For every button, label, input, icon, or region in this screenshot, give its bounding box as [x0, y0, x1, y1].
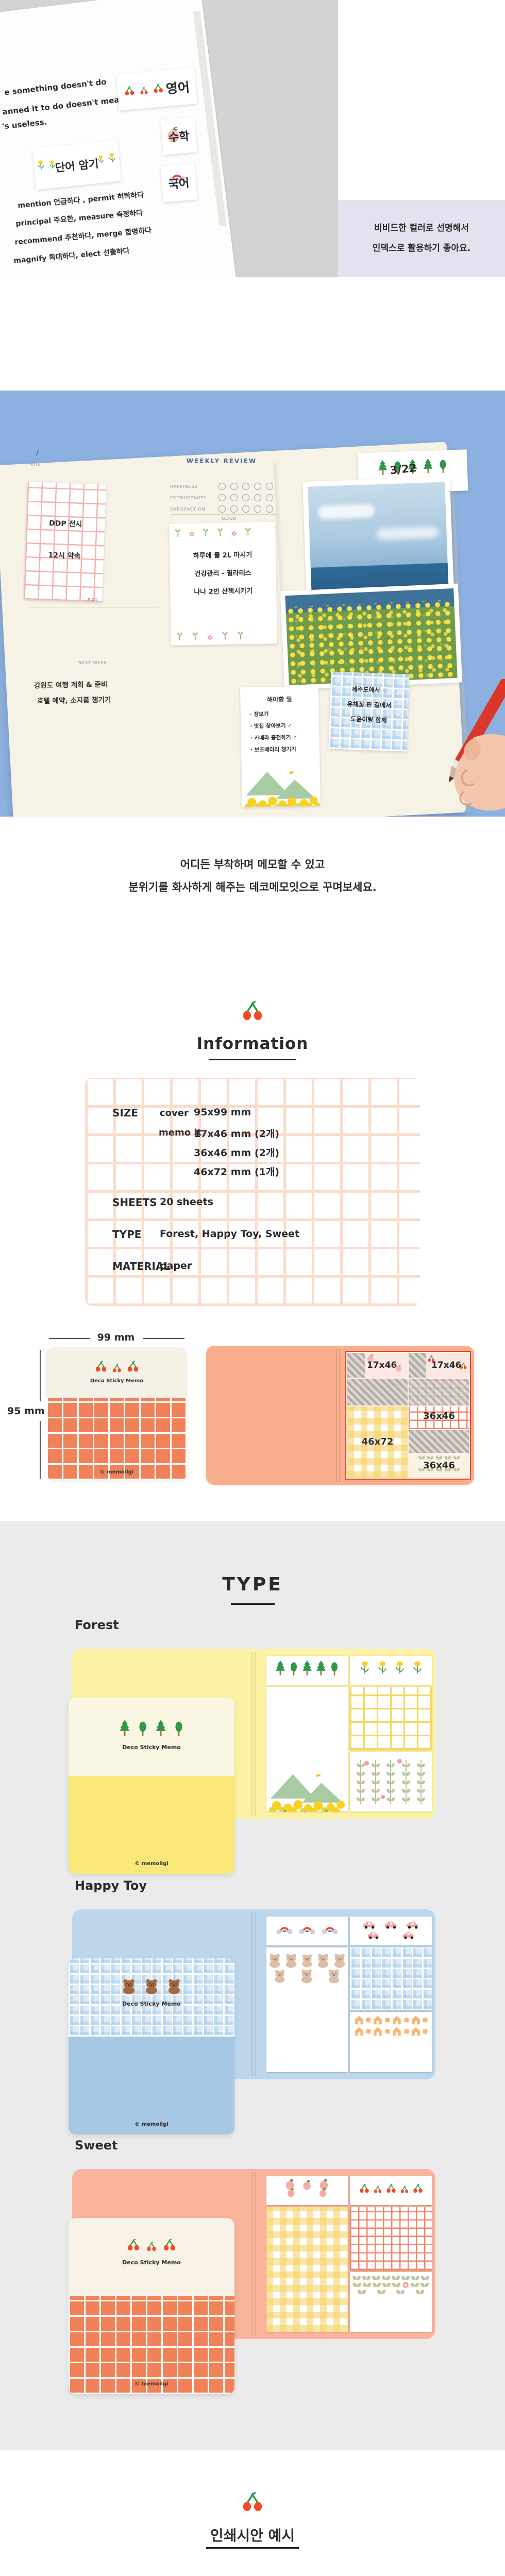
cherry-icon — [241, 2492, 264, 2515]
memo-line: 12시 약속 — [25, 549, 104, 562]
brand-label: © memoilgi — [46, 1469, 187, 1475]
information-title: Information — [0, 1035, 505, 1053]
tracker-happiness: HAPPINESS — [170, 484, 198, 489]
pine-tree-icon — [301, 1660, 313, 1676]
sprout-icon — [222, 631, 229, 640]
size-pad-front: Deco Sticky Memo © memoilgi — [46, 1347, 187, 1480]
bear-icon — [121, 1978, 137, 1994]
memo-sheet-gingham — [266, 2207, 348, 2332]
memo-17x46-peach: 17x46 — [347, 1353, 408, 1378]
leaf-icon — [435, 1455, 443, 1460]
todo-title: 해야할 일 — [240, 694, 318, 705]
car-icon — [362, 1920, 377, 1929]
flowers-texture — [285, 600, 457, 684]
memo-line: 나나 2번 산책시키기 — [170, 585, 276, 597]
house-icon — [372, 2026, 383, 2037]
adhesive-block — [409, 1430, 469, 1453]
width-dim-line — [143, 1338, 184, 1339]
memo-sheet-red-grid — [350, 2207, 432, 2270]
date-slash: / — [36, 447, 39, 457]
sprout-memo: 하루에 물 2L 마시기 건강관리 - 필라테스 나나 2번 산책시키기 — [169, 522, 277, 646]
house-icon — [410, 2014, 422, 2026]
house-icon — [391, 2014, 402, 2026]
sprout-icon — [174, 528, 181, 537]
cherry-icon — [126, 2239, 141, 2253]
memo-sheet-tulips — [350, 1656, 432, 1685]
flower-icon — [189, 531, 195, 537]
sweet-closed-cover: Deco Sticky Memo © memoilgi — [69, 2218, 234, 2394]
block-icon — [403, 2028, 410, 2035]
bear-icon — [316, 1953, 330, 1968]
adhesive-block — [347, 1379, 408, 1405]
leaf-icon — [372, 2275, 381, 2281]
memo-label: 단어 암기 — [33, 153, 120, 177]
leaf-icon — [418, 1455, 425, 1460]
cherry-icon — [241, 1001, 264, 1024]
block-icon — [384, 2028, 391, 2035]
pine-tree-icon — [377, 460, 389, 476]
bear-icon — [144, 1978, 159, 1994]
tulip-icon — [395, 1660, 405, 1675]
leaf-icon — [362, 2281, 372, 2289]
type-underline — [231, 1603, 275, 1605]
leaf-icon — [362, 2275, 371, 2281]
sprout-icon — [216, 527, 224, 537]
rainbow-icon — [321, 1924, 339, 1935]
leaf-icon — [444, 1455, 451, 1460]
flower-icon — [231, 531, 237, 537]
info-value: 36x46 mm (2개) — [194, 1145, 279, 1159]
leaf-icon — [352, 2281, 362, 2289]
bear-icon — [284, 1953, 298, 1968]
memo-sheet-mountain — [266, 1687, 348, 1811]
memo-line: DDP 전시 — [26, 517, 105, 530]
tracker-circles-row — [218, 494, 278, 503]
info-sub: cover — [160, 1108, 189, 1118]
leaf-icon — [420, 2281, 429, 2289]
brand-label: © memoilgi — [69, 1861, 234, 1867]
vine-icon — [371, 1756, 380, 1807]
cover-title: Deco Sticky Memo — [69, 2001, 234, 2007]
caption-line: 인덱스로 활용하기 좋아요. — [338, 241, 505, 253]
vine-icon — [386, 1756, 395, 1807]
happy-memo-panel — [266, 1917, 432, 2072]
info-value: paper — [160, 1260, 192, 1272]
happy-book-spine — [251, 1912, 256, 2076]
intro-caption-line: 어디든 부착하며 메모할 수 있고 — [0, 856, 505, 872]
car-icon — [401, 1930, 416, 1940]
leaf-icon — [381, 2275, 391, 2281]
memo-sheet-bears — [266, 1947, 348, 2072]
brand-label: © memoilgi — [69, 2122, 234, 2127]
memo-36x46-leaf: 36x46 — [409, 1454, 469, 1478]
cover-title: Deco Sticky Memo — [46, 1378, 187, 1384]
cherry-icon — [123, 86, 136, 98]
sprout-icon — [176, 631, 183, 641]
memo-sheet-cars — [350, 1917, 432, 1945]
sprout-icon — [192, 631, 199, 641]
memo-sheet-houses — [350, 2012, 432, 2072]
round-tree-icon — [137, 1721, 148, 1737]
block-icon — [422, 2017, 428, 2023]
mountain-illustration — [241, 756, 321, 807]
pine-tree-icon — [275, 1660, 286, 1676]
memo-sheet-plaid — [350, 1947, 432, 2010]
sweet-memo-panel — [266, 2176, 432, 2332]
sweet-book-spine — [251, 2172, 256, 2336]
flower-dot — [397, 1759, 402, 1764]
cover-title: Deco Sticky Memo — [69, 2259, 234, 2266]
memo-grid-top — [409, 1379, 469, 1405]
car-icon — [366, 1930, 381, 1940]
bear-icon — [267, 1953, 282, 1968]
product-detail-page: e something doesn't do anned it to do do… — [0, 0, 505, 2576]
tracker-productivity: PRODUCTIVITY — [170, 496, 207, 500]
plan-line: 호텔 예약, 소지품 챙기기 — [37, 694, 111, 706]
weekly-review-label: WEEKLY REVIEW — [170, 457, 273, 465]
tulip-icon — [412, 1660, 423, 1675]
bear-icon — [299, 1968, 314, 1984]
happy-closed-cover: Deco Sticky Memo © memoilgi — [69, 1958, 234, 2134]
block-icon — [384, 2017, 391, 2023]
peach-icon — [301, 2179, 313, 2191]
memo-line: 하루에 물 2L 마시기 — [170, 549, 276, 561]
todo-memo: 해야할 일 · 장보기 · 맛집 찾아보기 ✓ · 카메라 충전하기 ✓ · 보… — [240, 686, 321, 807]
house-icon — [372, 2014, 383, 2026]
size-label: 17x46 — [431, 1360, 461, 1370]
bear-icon — [332, 1953, 347, 1968]
bear-icon — [166, 1978, 182, 1994]
plan-line: 강원도 여행 계획 & 준비 — [34, 679, 108, 690]
info-label: TYPE — [112, 1228, 141, 1241]
width-dim-label: 99 mm — [90, 1332, 142, 1343]
peach-icon — [286, 2188, 296, 2198]
leaf-icon — [396, 2289, 405, 2295]
memo-sheet-peaches — [266, 2176, 348, 2205]
height-dim-line — [40, 1421, 41, 1479]
size-label: 36x46 — [409, 1460, 469, 1471]
bear-icon — [327, 1968, 341, 1984]
flower-icon — [401, 2281, 410, 2289]
leaf-icon — [411, 2275, 420, 2281]
tulip-icon — [360, 1660, 370, 1675]
leaf-icon — [453, 1455, 460, 1460]
information-underline — [209, 1059, 296, 1060]
info-label: SIZE — [112, 1107, 138, 1119]
divider — [170, 514, 278, 515]
leaf-icon — [415, 2289, 425, 2295]
cherry-icon — [94, 1361, 108, 1374]
tracker-circles-row — [218, 482, 278, 492]
pine-tree-icon — [422, 458, 434, 474]
rainbow-icon — [276, 1924, 293, 1935]
cherry-icon — [126, 1361, 140, 1374]
cloud — [318, 504, 375, 519]
round-tree-icon — [173, 1721, 184, 1737]
info-value: 95x99 mm — [194, 1107, 251, 1118]
memo-sheet-cherries — [350, 2176, 432, 2205]
next-week-label: NEXT WEEK — [41, 660, 144, 665]
memo-17x46-cherry: 17x46 — [409, 1353, 469, 1378]
pine-tree-icon — [155, 1719, 167, 1737]
leaf-icon — [410, 2281, 419, 2289]
round-tree-icon — [329, 1662, 340, 1676]
todo-item: · 장보기 — [250, 709, 319, 718]
index-tab-korean: 국어 — [160, 163, 197, 202]
size-book-spine — [336, 1349, 340, 1482]
type-label-happy-toy: Happy Toy — [75, 1878, 147, 1893]
block-icon — [365, 2017, 372, 2023]
info-label: SHEETS — [112, 1196, 157, 1209]
block-icon — [365, 2028, 372, 2035]
cherry-icon — [373, 2185, 382, 2195]
house-icon — [353, 2026, 365, 2037]
sun-label: SUN — [31, 463, 41, 467]
sprout-icon — [244, 527, 251, 536]
flower-dot — [381, 1795, 385, 1799]
date-tab-text: 3/22 — [390, 462, 417, 477]
grid-memo-ddp: DDP 전시 12시 약속 — [24, 482, 106, 602]
tracker-satisfaction: SATISFACTION — [170, 507, 206, 512]
bear-icon — [300, 1953, 314, 1968]
block-icon — [403, 2017, 410, 2023]
leaf-icon — [392, 2281, 401, 2289]
width-dim-line — [49, 1338, 90, 1339]
info-value: 20 sheets — [160, 1196, 213, 1208]
memo-sheet-rainbows — [266, 1917, 348, 1945]
tulip-icon — [377, 1660, 388, 1675]
memo-sheet-yellow-grid — [350, 1687, 432, 1750]
bad-label: BAD — [41, 598, 144, 602]
vine-icon — [401, 1756, 411, 1807]
forest-closed-cover: Deco Sticky Memo © memoilgi — [69, 1698, 234, 1874]
sprout-icon — [237, 630, 244, 640]
memo-36x46-grid: 36x46 — [409, 1406, 469, 1429]
cherry-icon — [112, 1364, 122, 1374]
leaf-icon — [391, 2275, 400, 2281]
type-label-forest: Forest — [75, 1618, 119, 1632]
leaf-icon — [401, 2275, 410, 2281]
block-icon — [422, 2028, 428, 2035]
todo-item: · 보조배터리 챙기기 — [250, 745, 319, 754]
info-value: 46x72 mm (1개) — [194, 1164, 279, 1178]
divider — [28, 670, 157, 670]
caption-line: 비비드한 컬러로 선명해서 — [338, 221, 505, 233]
memo-line: 건강관리 - 필라테스 — [170, 567, 276, 579]
peach-icon — [318, 2188, 328, 2198]
tab-label: 영어 — [165, 77, 190, 97]
cherry-icon — [359, 2183, 370, 2195]
mountain-illustration — [266, 1759, 348, 1811]
memo-sheet-vines — [350, 1752, 432, 1811]
vine-icon — [416, 1756, 426, 1807]
print-title: 인쇄시안 예시 — [0, 2524, 505, 2545]
house-icon — [391, 2026, 402, 2037]
section-cherry-icon — [241, 1001, 264, 1026]
leaf-icon — [352, 2275, 361, 2281]
height-dim-label: 95 mm — [7, 1405, 45, 1417]
photo-notebook-tabs: e something doesn't do anned it to do do… — [0, 0, 338, 277]
cherry-icon — [400, 2185, 409, 2195]
todo-item: · 카메라 충전하기 ✓ — [250, 733, 319, 742]
house-icon — [353, 2014, 365, 2026]
type-label-sweet: Sweet — [75, 2138, 117, 2153]
leaf-icon — [357, 2289, 366, 2295]
cover-title: Deco Sticky Memo — [69, 1744, 234, 1751]
rainbow-icon — [298, 1924, 316, 1935]
car-icon — [383, 1920, 399, 1929]
height-dim-line — [40, 1350, 41, 1401]
print-underline — [206, 2547, 299, 2549]
leaf-icon — [377, 2289, 386, 2295]
index-tab-english: 영어 — [116, 68, 197, 111]
size-label: 36x46 — [409, 1411, 469, 1421]
round-tree-icon — [437, 459, 448, 473]
vine-icon — [356, 1756, 365, 1807]
good-label: GOOD — [186, 516, 273, 521]
pine-tree-icon — [315, 1660, 327, 1676]
size-label: 17x46 — [367, 1360, 397, 1370]
brand-label: © memoilgi — [69, 2381, 234, 2387]
tracker-circles-row — [218, 505, 278, 515]
size-label: 46x72 — [347, 1436, 408, 1447]
info-value: Forest, Happy Toy, Sweet — [160, 1228, 299, 1240]
cherry-icon — [139, 86, 149, 96]
memo-sheet-leaves — [350, 2272, 432, 2332]
tab-label: 수학 — [167, 127, 190, 145]
bear-icon — [273, 1968, 287, 1984]
memo-sheet-trees — [266, 1656, 348, 1685]
forest-memo-panel — [266, 1656, 432, 1811]
round-tree-icon — [289, 1662, 299, 1676]
todo-item: · 맛집 찾아보기 ✓ — [250, 721, 319, 730]
divider — [28, 607, 157, 607]
flower-icon — [207, 634, 213, 640]
hand-with-pencil — [396, 679, 505, 817]
index-tab-math: 수학 — [160, 117, 197, 155]
leaf-icon — [420, 2275, 430, 2281]
intro-caption-line: 분위기를 화사하게 해주는 데코메모잇으로 꾸며보세요. — [0, 879, 505, 894]
cherry-icon — [162, 2239, 177, 2253]
size-memo-panel: 17x46 17x46 46x72 36x46 36x46 — [345, 1351, 471, 1480]
leaf-icon — [382, 2281, 391, 2289]
flower-dot — [364, 1761, 369, 1766]
forest-book-spine — [251, 1652, 256, 1816]
adhesive-strip — [409, 1353, 426, 1378]
cherry-icon — [146, 2242, 157, 2253]
cherry-icon — [385, 2183, 397, 2195]
leaf-icon — [427, 1455, 434, 1460]
tab-label: 국어 — [167, 174, 190, 192]
memo-46x72: 46x72 — [347, 1406, 408, 1478]
info-value: 17x46 mm (2개) — [194, 1126, 279, 1140]
caption-box-index: 비비드한 컬러로 선명해서 인덱스로 활용하기 좋아요. — [338, 200, 505, 277]
cherry-icon — [152, 83, 164, 95]
section-cherry-icon — [241, 2492, 264, 2517]
house-icon — [410, 2026, 422, 2037]
sprout-icon — [202, 527, 209, 537]
cloud — [376, 527, 439, 540]
pine-tree-icon — [119, 1719, 131, 1737]
type-title: TYPE — [0, 1574, 505, 1595]
photo-journal-blue: / SUN WEEKLY REVIEW DDP 전시 12시 약속 HAPPIN… — [0, 391, 505, 817]
car-icon — [405, 1920, 420, 1929]
leaf-icon — [372, 2281, 381, 2289]
adhesive-strip — [347, 1353, 365, 1378]
cherry-icon — [412, 2183, 424, 2195]
